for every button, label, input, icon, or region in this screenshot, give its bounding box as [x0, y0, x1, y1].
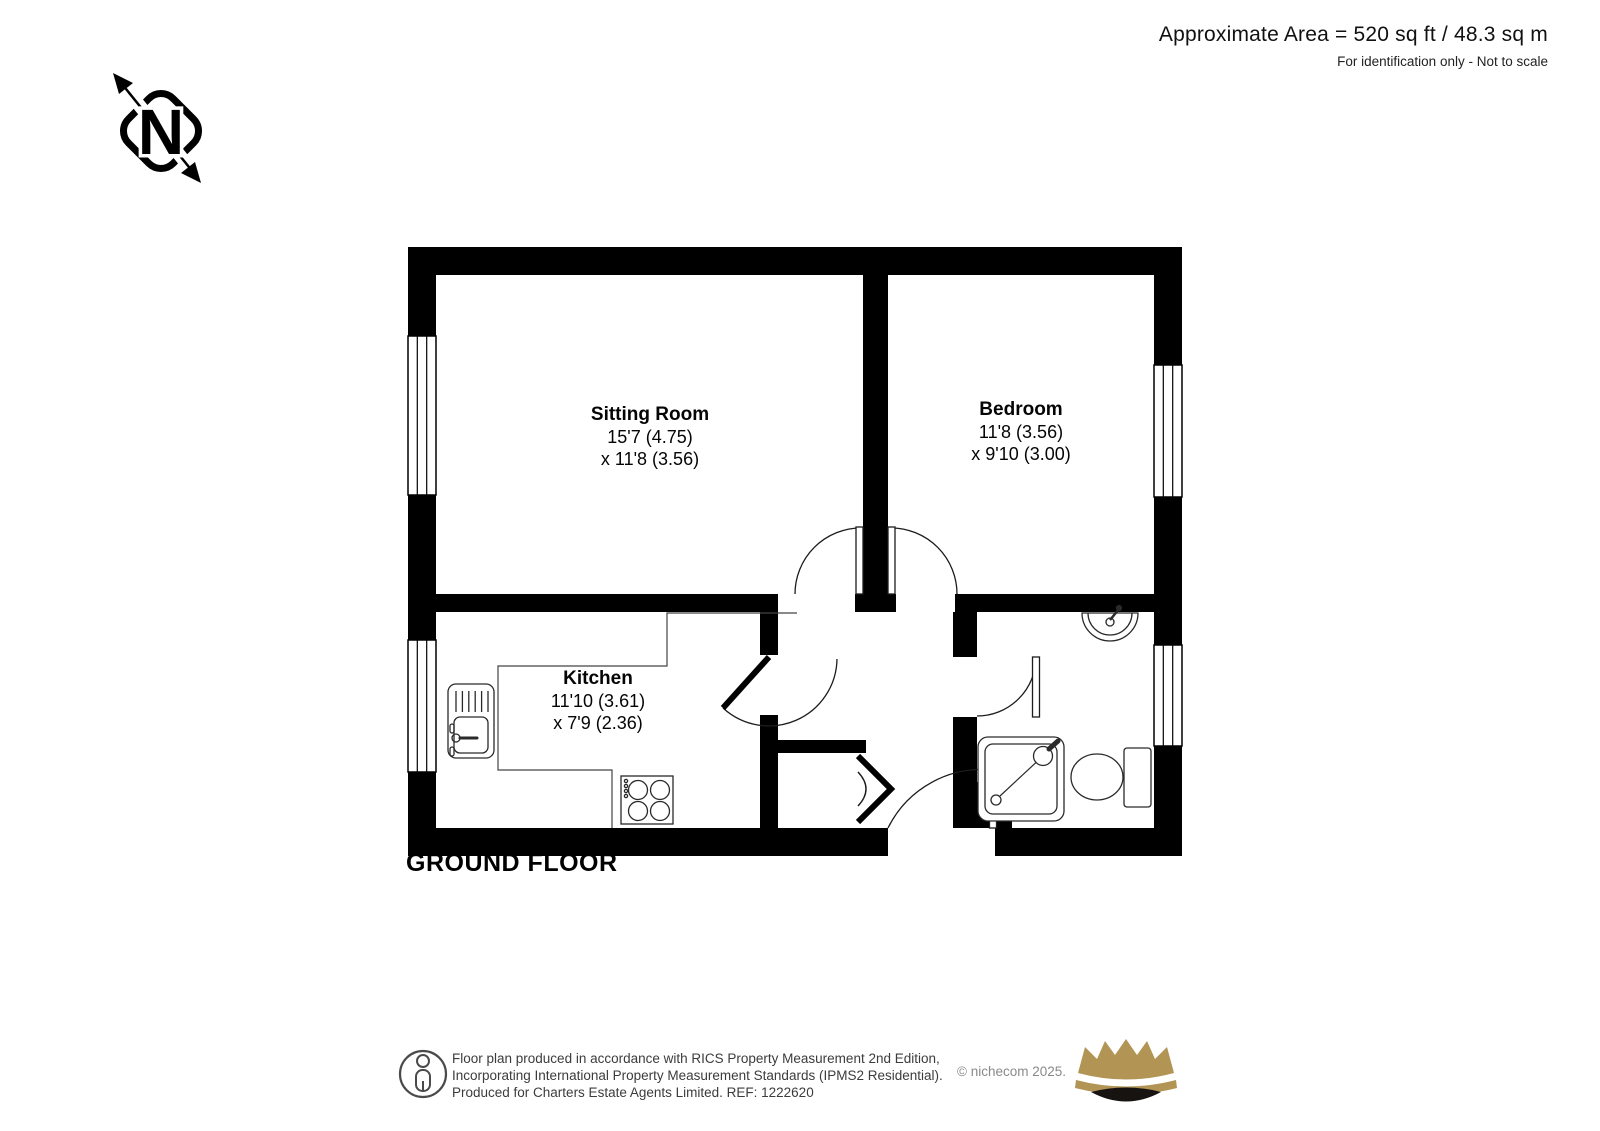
crown-peaks	[1078, 1039, 1174, 1080]
door-arc-bathroom	[977, 657, 1036, 716]
north-compass-icon: N	[113, 73, 206, 184]
room-name: Bedroom	[971, 399, 1071, 421]
shower-icon	[978, 737, 1064, 821]
window-sitting-room	[408, 336, 436, 495]
door-bathroom	[977, 657, 1040, 717]
bifold-door-fold-line	[858, 772, 866, 806]
room-dimension-imperial: 11'10 (3.61)	[551, 690, 645, 712]
window-bedroom	[1154, 365, 1182, 497]
wall-closet-top	[778, 740, 866, 753]
wall-hall-bath-upper	[953, 612, 977, 657]
person-icon-head	[417, 1055, 429, 1067]
wall-left-2	[408, 495, 436, 640]
bifold-door-leaves	[858, 756, 891, 822]
door-leaf-bathroom	[1033, 657, 1040, 717]
floor-title: GROUND FLOOR	[406, 849, 618, 878]
door-leaf-kitchen	[723, 657, 769, 708]
wall-left-1	[408, 247, 436, 336]
window-bathroom	[1154, 645, 1182, 746]
kitchen-sink-icon	[448, 684, 494, 758]
identification-note: For identification only - Not to scale	[1337, 54, 1548, 69]
wall-sitting-kitchen	[436, 594, 778, 612]
wall-bedroom-bath	[955, 594, 1154, 612]
kitchen-label: Kitchen 11'10 (3.61) x 7'9 (2.36)	[551, 668, 645, 734]
room-dimension-imperial: 11'8 (3.56)	[971, 421, 1071, 443]
hob-icon	[621, 776, 673, 824]
person-icon	[400, 1051, 446, 1097]
nichecom-crown-logo	[1075, 1039, 1177, 1102]
door-bedroom	[888, 527, 957, 594]
sitting-room-label: Sitting Room 15'7 (4.75) x 11'8 (3.56)	[591, 404, 709, 470]
wall-central-foot	[855, 594, 896, 612]
room-name: Kitchen	[551, 668, 645, 690]
door-leaf-sitting-room	[856, 527, 863, 594]
bedroom-label: Bedroom 11'8 (3.56) x 9'10 (3.00)	[971, 399, 1071, 465]
room-dimension-imperial-2: x 11'8 (3.56)	[591, 448, 709, 470]
compass-north-letter: N	[138, 96, 184, 168]
door-arc-sitting-room	[795, 528, 861, 594]
wall-right-1	[1154, 247, 1182, 365]
room-dimension-imperial: 15'7 (4.75)	[591, 426, 709, 448]
door-arc-bedroom	[891, 528, 957, 594]
floorplan-canvas: N	[0, 0, 1600, 1131]
door-leaf-bedroom	[888, 527, 895, 594]
room-name: Sitting Room	[591, 404, 709, 426]
footer-disclaimer-line3: Produced for Charters Estate Agents Limi…	[452, 1085, 814, 1100]
wall-central	[863, 275, 888, 594]
footer-disclaimer-line1: Floor plan produced in accordance with R…	[452, 1051, 940, 1066]
wall-kitchen-hall-lower	[760, 715, 778, 828]
wall-bottom-right	[995, 828, 1182, 856]
wall-left-3	[408, 772, 436, 856]
wall-top	[408, 247, 1182, 275]
footer-copyright: © nichecom 2025.	[957, 1064, 1066, 1079]
footer-disclaimer-line2: Incorporating International Property Mea…	[452, 1068, 943, 1083]
wall-right-2	[1154, 497, 1182, 645]
room-dimension-imperial-2: x 9'10 (3.00)	[971, 443, 1071, 465]
wall-kitchen-hall-upper	[760, 612, 778, 655]
approximate-area-text: Approximate Area = 520 sq ft / 48.3 sq m	[1159, 23, 1548, 47]
room-dimension-imperial-2: x 7'9 (2.36)	[551, 712, 645, 734]
door-sitting-room	[795, 527, 863, 594]
window-kitchen	[408, 640, 436, 772]
door-kitchen	[723, 657, 837, 726]
toilet-icon	[1071, 748, 1151, 807]
bifold-closet-door-icon	[858, 756, 891, 822]
wall-right-3	[1154, 746, 1182, 856]
walls	[408, 247, 1182, 856]
